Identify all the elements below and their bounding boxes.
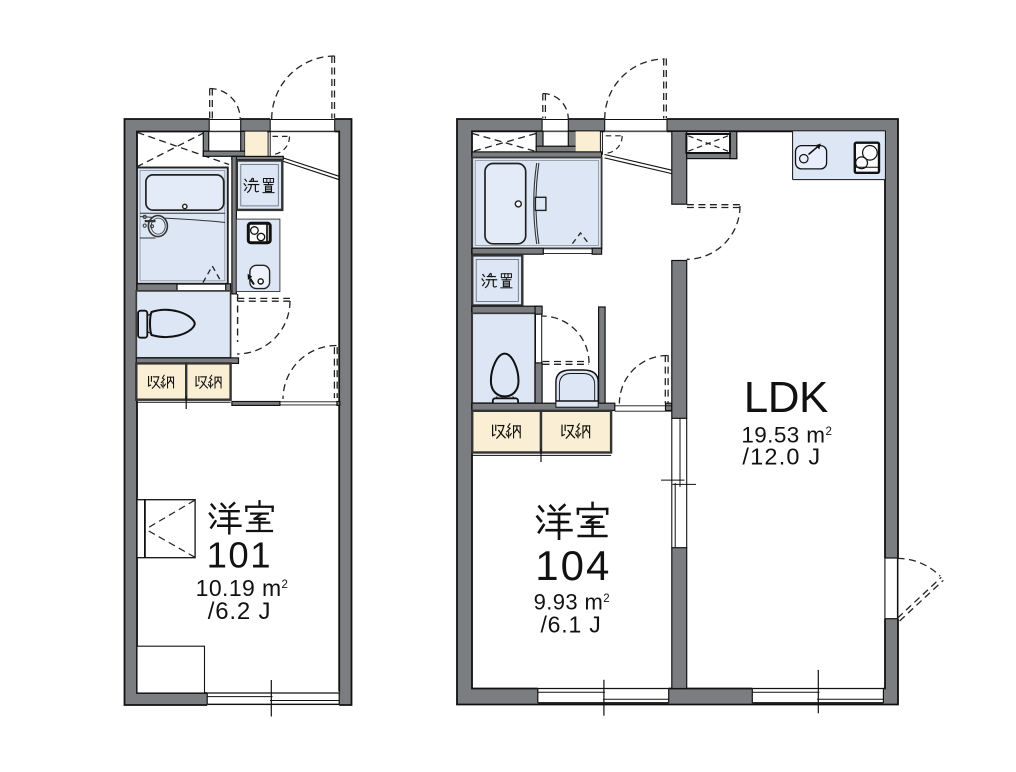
svg-text:LDK: LDK	[744, 373, 828, 422]
svg-text:/6.2 J: /6.2 J	[208, 598, 272, 625]
svg-text:104: 104	[535, 542, 611, 589]
svg-text:/12.0 J: /12.0 J	[742, 444, 821, 470]
svg-text:101: 101	[207, 534, 272, 575]
svg-text:/6.1 J: /6.1 J	[540, 612, 601, 638]
